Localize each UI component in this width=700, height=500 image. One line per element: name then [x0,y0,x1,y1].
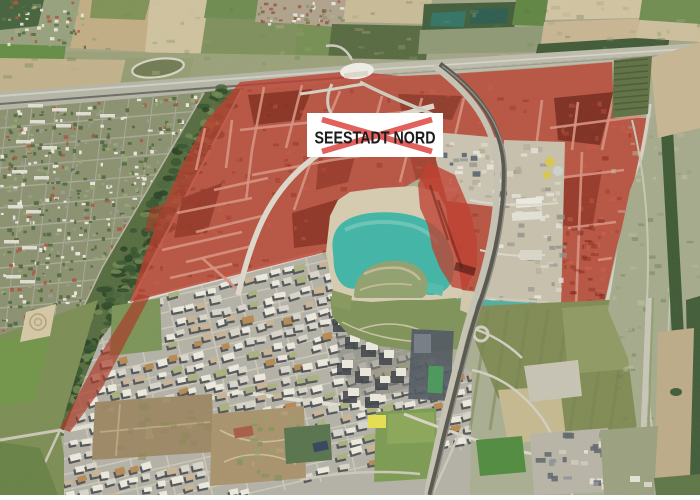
svg-text:SEESTADT NORD: SEESTADT NORD [315,128,436,148]
